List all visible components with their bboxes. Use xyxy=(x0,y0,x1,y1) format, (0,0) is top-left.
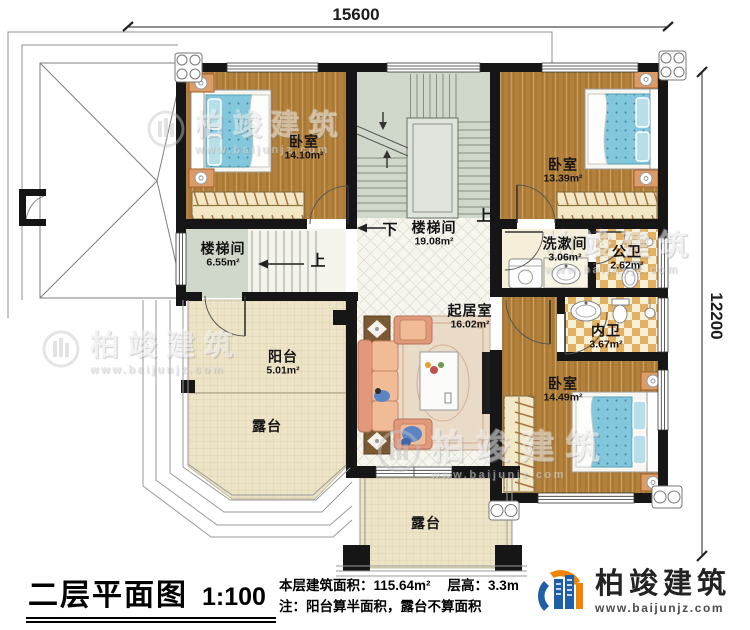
plan-scale: 1:100 xyxy=(202,583,266,612)
page-title: 二层平面图 xyxy=(28,570,188,614)
brand-logo-icon xyxy=(534,567,588,617)
room-label-stairwell-small: 楼梯间 6.55m² xyxy=(201,241,246,268)
room-label-living: 起居室 16.02m² xyxy=(448,303,493,330)
window-living-slider xyxy=(376,467,452,477)
bedroom2-bed xyxy=(585,89,663,169)
window-public-bath xyxy=(658,238,668,288)
ac-unit xyxy=(652,486,682,508)
window-bedroom3-side xyxy=(658,370,668,430)
terrace-column xyxy=(343,545,370,571)
floor-height-label: 层高： xyxy=(448,578,489,593)
room-label-bedroom2: 卧室 13.39m² xyxy=(543,157,582,184)
window-bedroom2 xyxy=(542,63,638,72)
floor-plan-drawing xyxy=(0,0,750,630)
stairwell-small-corridor-floor xyxy=(248,229,346,292)
floor-area-label: 本层建筑面积： xyxy=(279,578,374,593)
room-label-public-bath: 公卫 2.62m² xyxy=(610,244,643,271)
dimension-width-label: 15600 xyxy=(326,5,386,25)
ensuite-sink xyxy=(571,301,601,321)
stair-up-label: 上 xyxy=(310,250,325,271)
balcony-terrace-floor xyxy=(183,300,346,499)
ac-unit xyxy=(659,51,686,80)
chimney xyxy=(19,189,46,226)
plan-note: 注：阳台算半面积，露台不算面积 xyxy=(279,597,519,618)
room-label-terrace-left: 露台 xyxy=(252,419,282,435)
floor-height-value: 3.3m xyxy=(488,578,519,593)
stair-down-label: 下 xyxy=(382,219,397,240)
dimension-height-label: 12200 xyxy=(706,292,726,340)
title-block: 二层平面图 1:100 xyxy=(26,570,276,623)
room-label-balcony: 阳台 5.01m² xyxy=(266,349,299,376)
window-bedroom1 xyxy=(227,63,318,72)
room-label-terrace-bottom: 露台 xyxy=(411,516,441,532)
plan-stats-line: 本层建筑面积：115.64m²层高：3.3m xyxy=(279,576,519,597)
terrace-column xyxy=(495,545,522,571)
shower-head xyxy=(645,238,653,246)
window-stairwell xyxy=(387,63,480,72)
brand-url: www.baijunjz.com xyxy=(595,602,731,614)
washing-machine xyxy=(509,259,542,288)
window-bedroom3-bottom xyxy=(538,493,634,503)
floor-area-value: 115.64m² xyxy=(374,578,431,593)
living-furniture xyxy=(358,316,492,454)
plan-info: 本层建筑面积：115.64m²层高：3.3m 注：阳台算半面积，露台不算面积 xyxy=(279,576,519,618)
living-coffee-table xyxy=(420,352,458,410)
brand-logo: 柏竣建筑 www.baijunjz.com xyxy=(534,567,731,617)
stair-up-label: 上 xyxy=(476,205,491,226)
room-label-washroom: 洗漱间 3.06m² xyxy=(543,236,588,263)
window-ensuite xyxy=(658,298,668,352)
window-stairwell-small xyxy=(176,233,186,285)
brand-name: 柏竣建筑 xyxy=(595,570,731,599)
room-label-bedroom3: 卧室 14.49m² xyxy=(543,376,582,403)
ac-unit xyxy=(489,501,519,520)
floor-plan-canvas: 柏竣建筑 www.baijunjz.com 柏竣建筑 www.baijunjz.… xyxy=(0,0,750,630)
bedroom3-bed xyxy=(572,392,660,472)
room-label-stairwell-main: 楼梯间 19.08m² xyxy=(412,220,457,247)
room-label-ensuite-bath: 内卫 3.67m² xyxy=(589,323,622,350)
bedroom1-bed xyxy=(191,90,271,172)
room-label-bedroom1: 卧室 14.10m² xyxy=(284,134,323,161)
ac-unit xyxy=(175,53,202,82)
pilaster xyxy=(333,310,349,325)
